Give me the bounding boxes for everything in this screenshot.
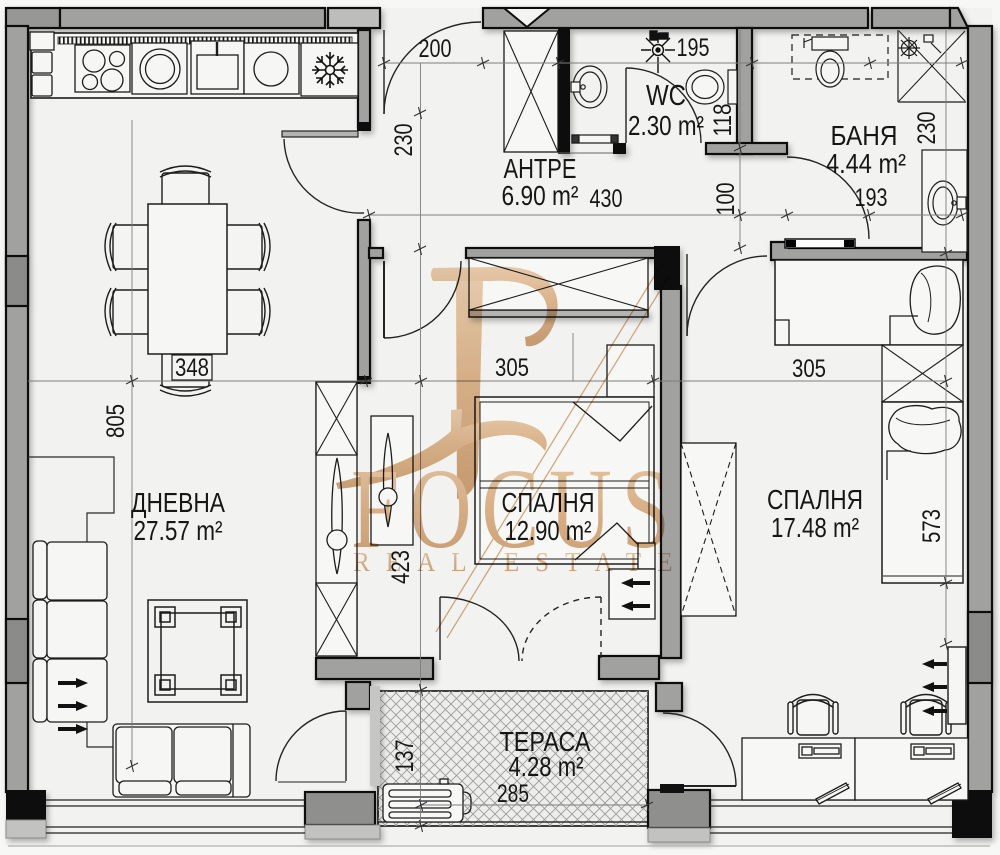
svg-text:285: 285 (497, 780, 529, 808)
svg-text:6.90 m²: 6.90 m² (502, 180, 579, 211)
svg-text:430: 430 (590, 185, 623, 213)
svg-text:230: 230 (390, 124, 418, 157)
svg-text:305: 305 (792, 355, 826, 383)
svg-text:805: 805 (102, 404, 130, 438)
svg-text:195: 195 (677, 34, 710, 62)
svg-text:348: 348 (175, 354, 209, 382)
svg-text:17.48 m²: 17.48 m² (771, 512, 859, 543)
svg-text:WC: WC (646, 80, 686, 112)
svg-text:305: 305 (495, 354, 529, 382)
svg-text:СПАЛНЯ: СПАЛНЯ (767, 484, 863, 515)
svg-text:200: 200 (419, 35, 452, 63)
svg-text:100: 100 (712, 183, 740, 216)
svg-text:573: 573 (918, 509, 946, 543)
svg-text:230: 230 (913, 112, 941, 145)
svg-text:ДНЕВНА: ДНЕВНА (131, 487, 226, 518)
svg-text:БАНЯ: БАНЯ (831, 120, 898, 151)
svg-text:4.28 m²: 4.28 m² (509, 751, 584, 782)
svg-text:4.44 m²: 4.44 m² (826, 148, 906, 179)
svg-text:2.30 m²: 2.30 m² (628, 110, 704, 141)
svg-text:137: 137 (391, 740, 419, 773)
svg-text:118: 118 (709, 104, 737, 137)
svg-text:193: 193 (855, 184, 888, 212)
svg-text:REAL ESTATE: REAL ESTATE (353, 547, 688, 577)
svg-text:27.57 m²: 27.57 m² (134, 515, 223, 546)
